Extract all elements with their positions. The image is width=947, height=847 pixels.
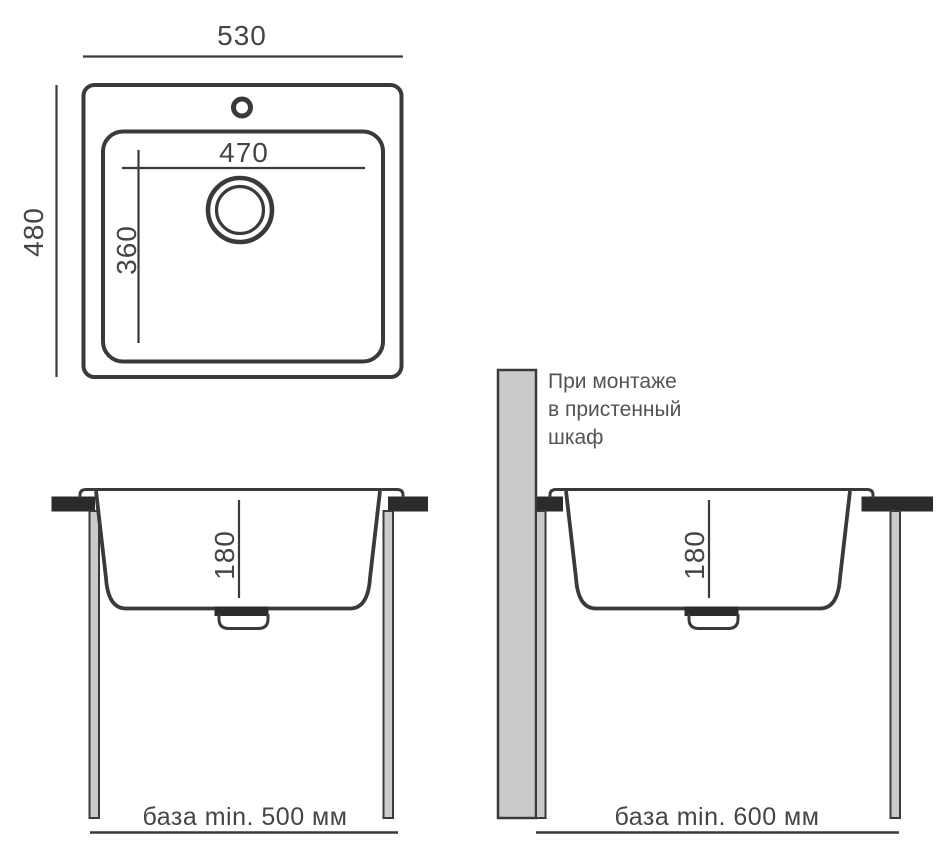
wall-cabinet-panel [498, 370, 536, 818]
drain-trap [219, 614, 268, 629]
dim-bowl-height: 180 [679, 530, 710, 580]
base-min-width-label: база min. 600 мм [615, 803, 820, 831]
cabinet-side-left [536, 511, 546, 818]
drain-flange [215, 607, 269, 617]
cabinet-side-right [891, 511, 901, 818]
sink-dimension-drawing: 530 480 470 360 [0, 0, 947, 847]
base-min-width-label: база min. 500 мм [143, 803, 348, 831]
countertop-left [52, 497, 96, 512]
drain-trap [689, 614, 738, 629]
drain-flange [685, 607, 739, 617]
countertop-right [388, 497, 428, 512]
dim-bowl-width: 470 [219, 137, 269, 168]
cabinet-side-left [90, 511, 100, 818]
drawing-canvas: 530 480 470 360 [0, 0, 947, 847]
countertop-left [537, 497, 563, 512]
dim-outer-depth: 480 [18, 207, 49, 257]
countertop-right [862, 497, 934, 512]
top-view: 530 480 470 360 [18, 20, 403, 377]
dim-outer-width: 530 [217, 20, 267, 51]
mounting-note-line1: При монтаже [548, 370, 677, 393]
side-view-wall-cabinet: При монтаже в пристенный шкаф 180 база m… [498, 370, 933, 833]
cabinet-side-right [384, 511, 394, 818]
side-view-standard: 180 база min. 500 мм [52, 490, 429, 833]
dim-bowl-depth: 360 [111, 225, 142, 275]
mounting-note-line2: в пристенный [548, 398, 681, 421]
dim-bowl-height: 180 [209, 530, 240, 580]
mounting-note-line3: шкаф [548, 426, 603, 449]
